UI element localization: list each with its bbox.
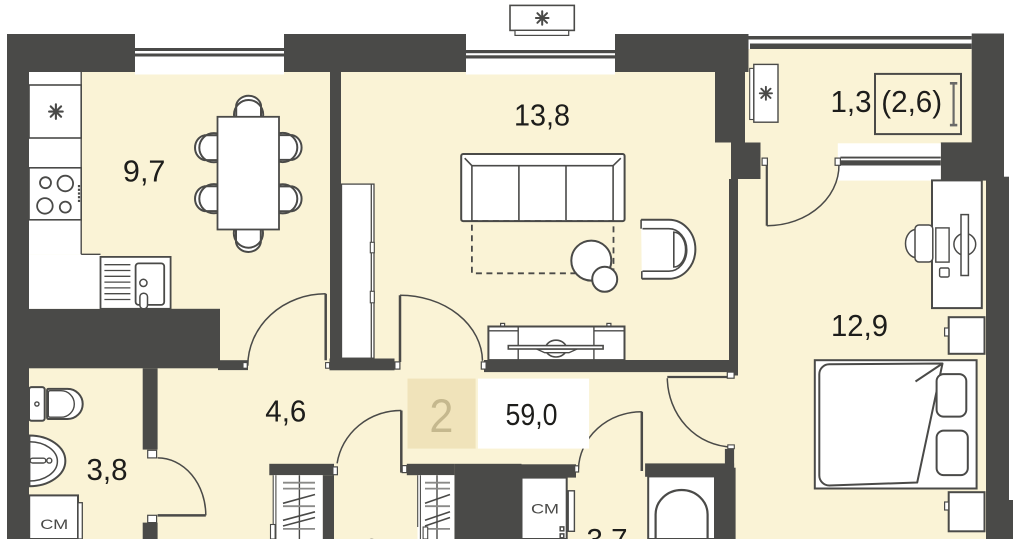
svg-text:3,7: 3,7 [587, 523, 628, 539]
svg-text:12,9: 12,9 [831, 309, 888, 343]
svg-text:СМ: СМ [531, 501, 559, 517]
svg-text:13,8: 13,8 [514, 99, 570, 133]
svg-text:СМ: СМ [40, 516, 68, 532]
svg-text:1,3: 1,3 [831, 85, 872, 119]
svg-text:(2,6): (2,6) [881, 85, 942, 119]
svg-text:3,8: 3,8 [87, 453, 128, 487]
svg-text:3,5: 3,5 [364, 533, 405, 539]
svg-text:59,0: 59,0 [506, 398, 558, 432]
svg-text:4,6: 4,6 [265, 395, 306, 429]
svg-text:2: 2 [429, 389, 453, 442]
svg-text:9,7: 9,7 [123, 154, 166, 188]
